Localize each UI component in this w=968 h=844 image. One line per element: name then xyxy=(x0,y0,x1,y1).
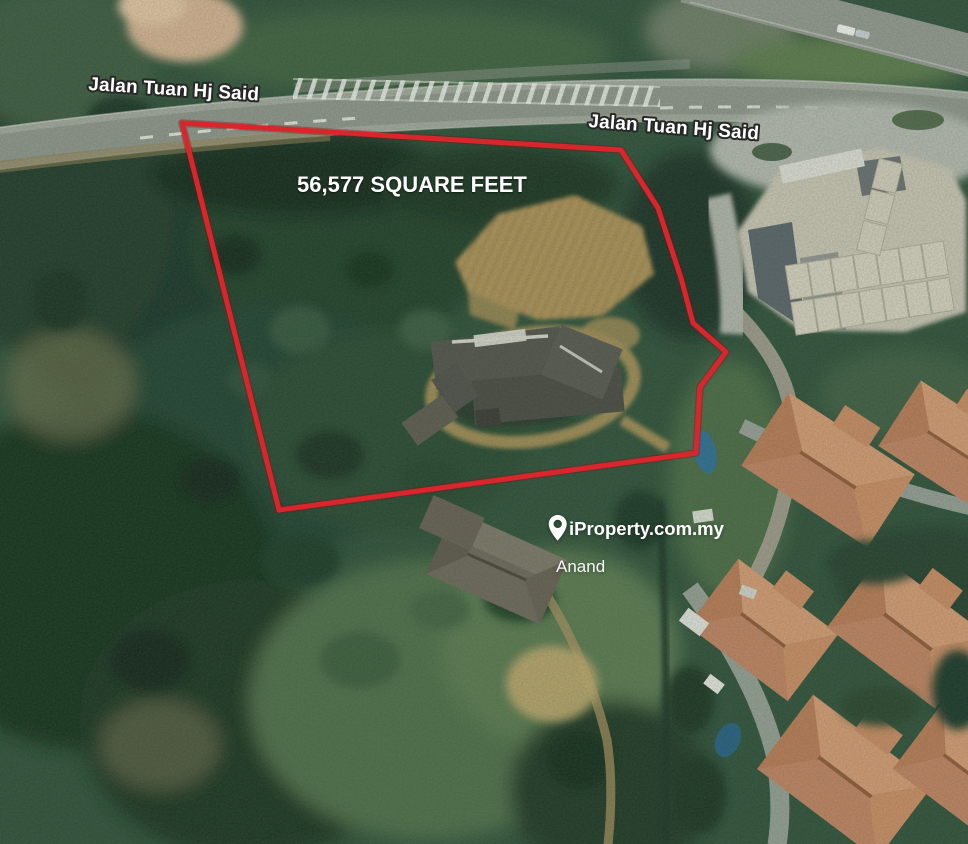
satellite-map[interactable]: Jalan Tuan Hj Said Jalan Tuan Hj Said 56… xyxy=(0,0,968,844)
parcel-area-label: 56,577 SQUARE FEET xyxy=(297,172,527,197)
watermark-agent: Anand xyxy=(556,557,605,576)
watermark-brand: iProperty.com.my xyxy=(569,518,725,539)
grain-overlay-light xyxy=(0,0,968,844)
satellite-map-image[interactable]: Jalan Tuan Hj Said Jalan Tuan Hj Said 56… xyxy=(0,0,968,844)
